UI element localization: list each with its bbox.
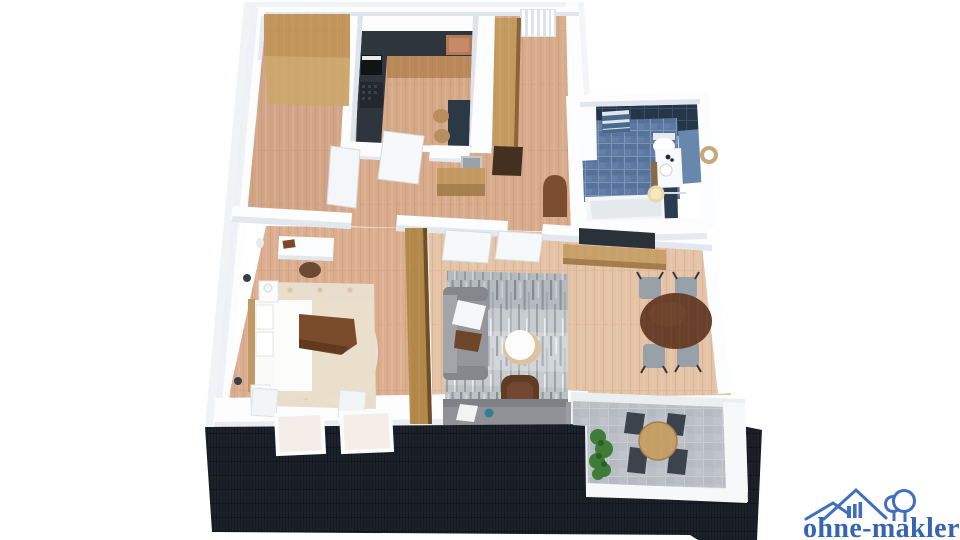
svg-text:ohne-makler: ohne-makler: [803, 513, 960, 540]
